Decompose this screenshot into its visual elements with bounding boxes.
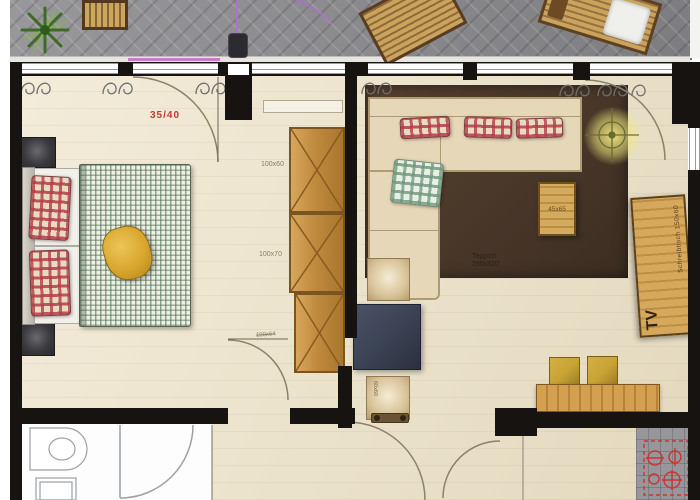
wall-bedroom-bottom-2: [290, 408, 355, 424]
shower-icon: [36, 478, 76, 500]
living-door-arc: [585, 80, 665, 160]
window-bedroom-1: [20, 63, 118, 74]
curtain-symbols: [21, 83, 645, 96]
window-living-1: [368, 63, 463, 74]
entry-door-arc-1: [347, 422, 425, 500]
wall-right-lower: [688, 170, 700, 500]
bathroom-door-arc: [120, 425, 193, 498]
wall-right-upper: [688, 62, 700, 128]
toilet-icon: [30, 428, 87, 470]
burner-icon: [649, 474, 659, 484]
kitchen-appliance-symbols: [644, 441, 688, 495]
door-dimension-red: 35/40: [150, 110, 180, 121]
wall-divider: [345, 62, 357, 338]
rug-label: Teppich 230x320: [472, 253, 514, 270]
wall-hall-block: [495, 408, 537, 436]
wardrobe-upper-label: 100x60: [261, 161, 284, 169]
wall-bedroom-bottom: [10, 408, 228, 424]
wardrobe-mid-label: 100x70: [259, 251, 282, 259]
balcony-door-opening: [133, 63, 218, 74]
pillar-window-notch: [228, 64, 249, 75]
purple-cad-arc: [296, 0, 332, 24]
wall-mullion-1: [463, 62, 477, 80]
living-door-opening: [590, 63, 672, 74]
window-living-2: [477, 63, 573, 74]
bedroom-door-arc: [228, 340, 288, 400]
wall-mullion-2: [573, 62, 590, 80]
bedroom-exit-door-label: 100x64: [256, 331, 276, 339]
wall-living-bottom: [535, 412, 688, 428]
window-bedroom-2: [252, 63, 345, 74]
window-right: [689, 128, 700, 170]
floor-plan: 60x60 45x65 Schreibtisch 150x60 TV: [0, 0, 700, 500]
floor-lamp-icon: [585, 108, 639, 162]
bathroom-fixtures: [30, 425, 523, 500]
entry-door-arc-2: [443, 441, 500, 498]
wall-left: [10, 62, 22, 500]
